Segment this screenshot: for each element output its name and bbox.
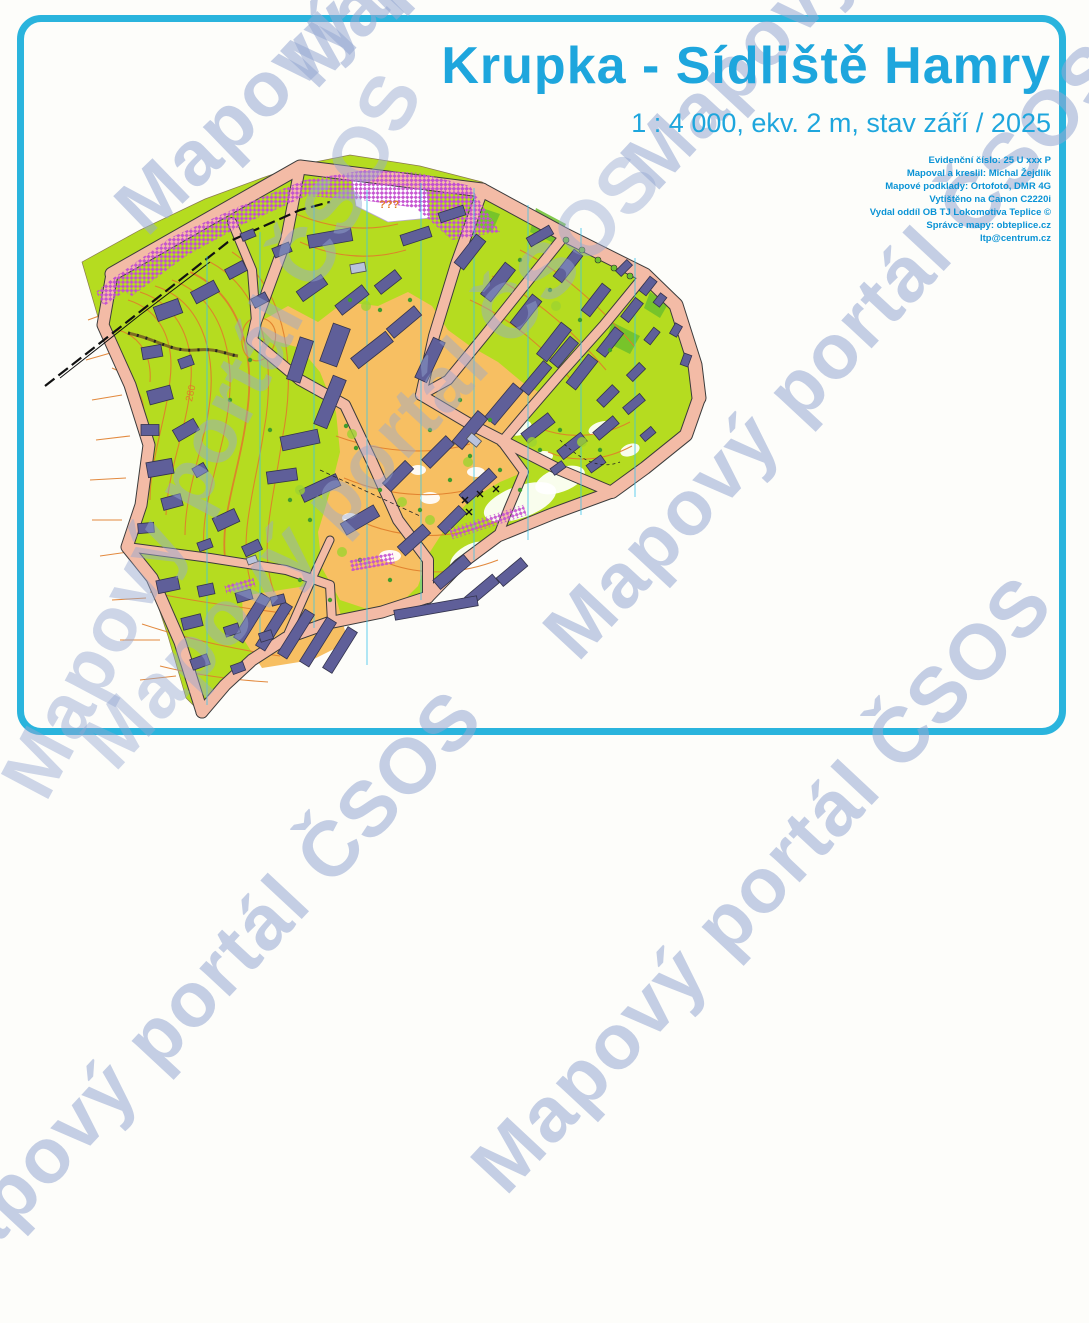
page-title: Krupka - Sídliště Hamry [441, 36, 1051, 96]
imprint-block: Evidenční číslo: 25 U xxx P Mapoval a kr… [441, 154, 1051, 245]
imprint-line: Vydal oddíl OB TJ Lokomotiva Teplice © [441, 206, 1051, 219]
imprint-line: Vytištěno na Canon C2220i [441, 193, 1051, 206]
imprint-line: Správce mapy: obteplice.cz [441, 219, 1051, 232]
imprint-line: ltp@centrum.cz [441, 232, 1051, 245]
imprint-line: Evidenční číslo: 25 U xxx P [441, 154, 1051, 167]
unmapped-area-label: ??? [379, 199, 399, 211]
imprint-line: Mapové podklady: Ortofoto, DMR 4G [441, 180, 1051, 193]
map-header: Krupka - Sídliště Hamry 1 : 4 000, ekv. … [441, 36, 1051, 245]
imprint-line: Mapoval a kreslil: Michal Žejdlík [441, 167, 1051, 180]
page-subtitle: 1 : 4 000, ekv. 2 m, stav září / 2025 [441, 108, 1051, 139]
watermark-text: Mapový portál ČSOS [0, 676, 495, 1320]
